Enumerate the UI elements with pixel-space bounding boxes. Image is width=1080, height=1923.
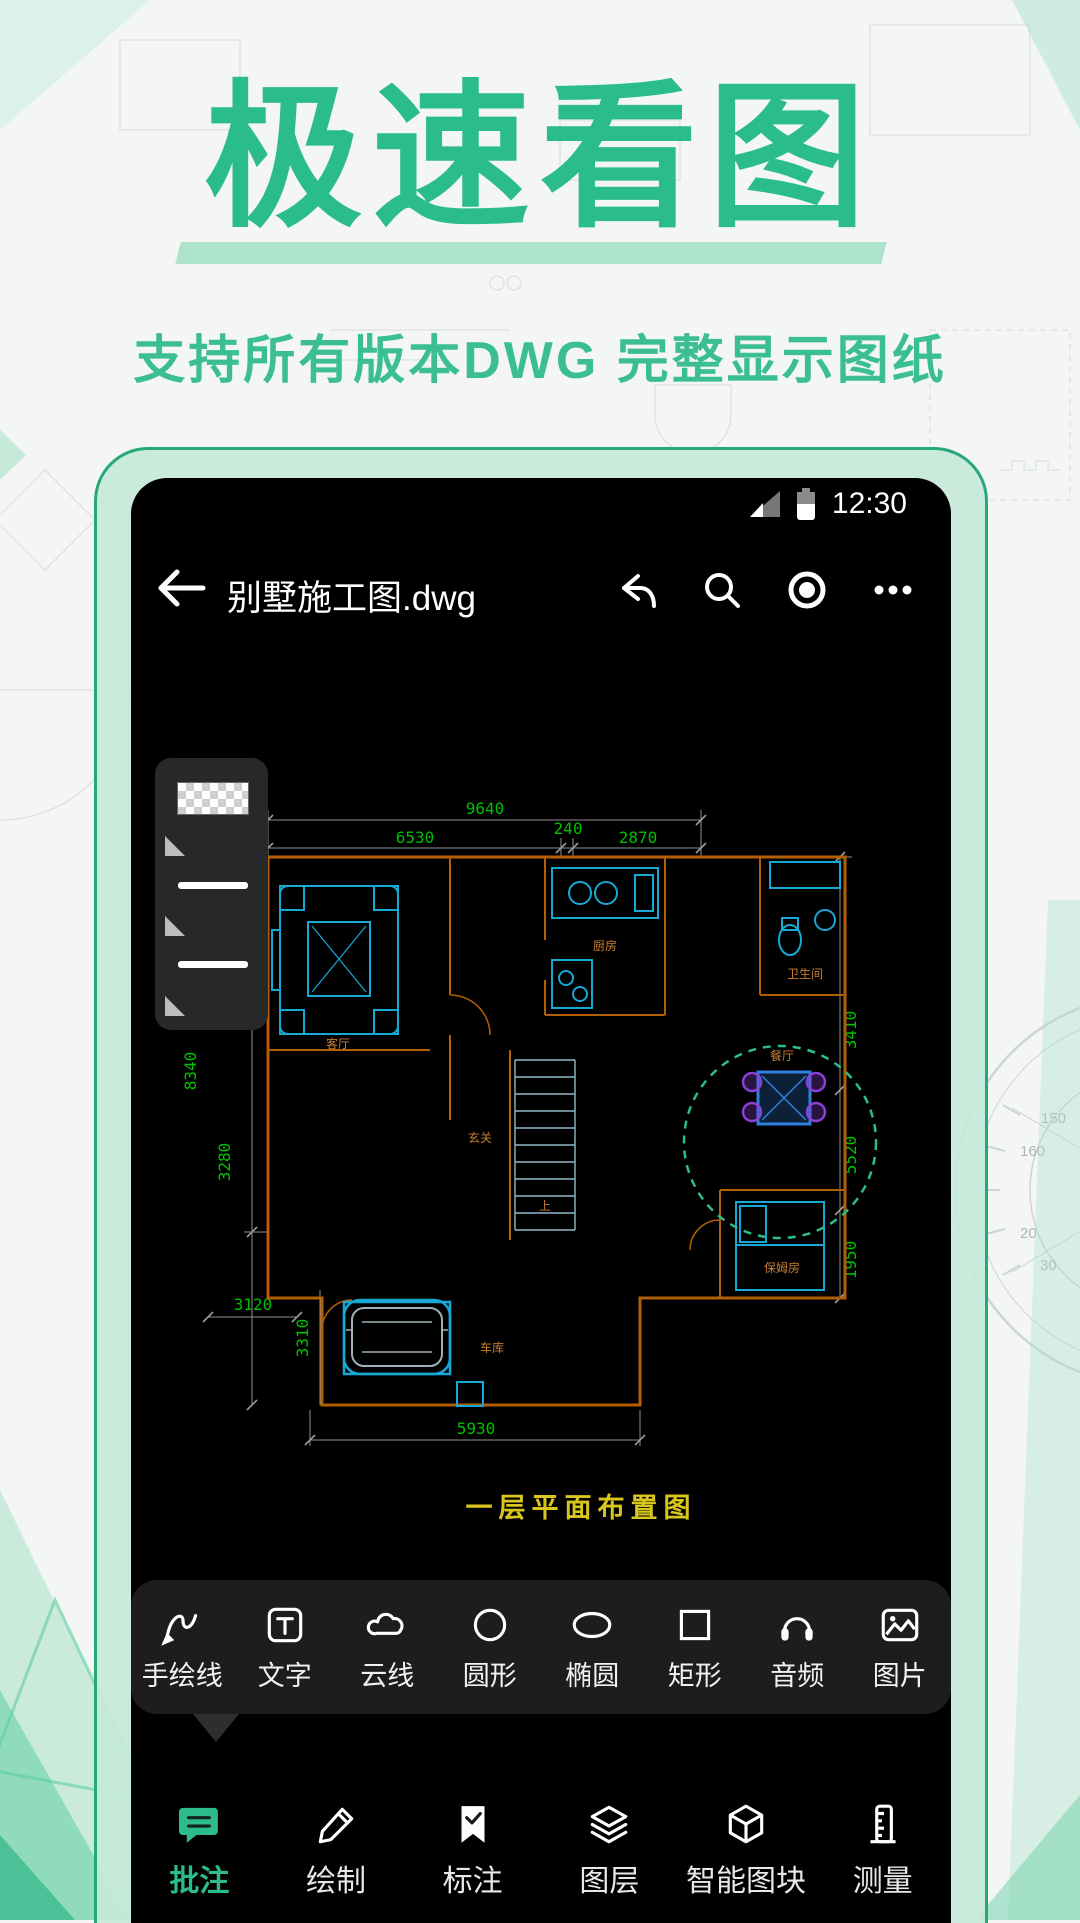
tab-label: 图层 [579, 1856, 639, 1900]
room-label: 上 [539, 1199, 551, 1213]
tool-image[interactable]: 图片 [849, 1602, 952, 1693]
dim-label: 3120 [234, 1295, 273, 1314]
draw-icon [313, 1802, 359, 1848]
tab-label: 批注 [169, 1856, 229, 1900]
dim-label: 6530 [396, 828, 435, 847]
status-time: 12:30 [832, 487, 907, 521]
tool-ellipse[interactable]: 椭圆 [541, 1602, 644, 1693]
tool-freehand-line[interactable]: 手绘线 [131, 1602, 234, 1693]
page-subtitle: 支持所有版本DWG 完整显示图纸 [0, 318, 1080, 393]
text-icon [262, 1602, 308, 1648]
transparent-color-swatch[interactable] [177, 782, 249, 815]
tab-measure[interactable]: 测量 [814, 1802, 951, 1900]
room-label: 保姆房 [764, 1260, 800, 1275]
dim-label: 5930 [457, 1419, 496, 1438]
app-screen: 12:30 别墅施工图.dwg [131, 478, 951, 1923]
tab-dimension[interactable]: 标注 [404, 1802, 541, 1900]
undo-icon[interactable] [616, 568, 660, 612]
line-style-option[interactable] [165, 996, 185, 1016]
tab-draw[interactable]: 绘制 [268, 1802, 405, 1900]
tool-label: 手绘线 [142, 1654, 223, 1693]
tab-label: 标注 [443, 1856, 503, 1900]
selected-dining-table[interactable] [743, 1072, 825, 1124]
battery-icon [794, 486, 818, 522]
dim-label: 3310 [293, 1319, 312, 1358]
status-bar: 12:30 [750, 486, 907, 522]
layers-icon [586, 1802, 632, 1848]
signal-icon [750, 491, 780, 517]
tab-layers[interactable]: 图层 [541, 1802, 678, 1900]
room-label: 客厅 [326, 1036, 350, 1051]
tab-label: 绘制 [306, 1856, 366, 1900]
search-icon[interactable] [700, 568, 744, 612]
line-style-option[interactable] [165, 916, 185, 936]
line-style-panel [155, 758, 268, 1030]
tool-label: 文字 [258, 1654, 312, 1693]
cad-canvas[interactable]: 9640 6530 240 2870 8340 3280 3120 3310 5… [180, 790, 880, 1490]
locate-target-icon[interactable] [785, 568, 829, 612]
dim-label: 240 [554, 819, 583, 838]
tool-label: 云线 [360, 1654, 414, 1693]
freehand-line-icon [159, 1602, 205, 1648]
rectangle-icon [672, 1602, 718, 1648]
line-width-sample[interactable] [178, 961, 248, 968]
smart-block-icon [723, 1802, 769, 1848]
page-title: 极速看图 [0, 76, 1080, 242]
floorplan-furniture [272, 862, 840, 1406]
dim-label: 3280 [215, 1143, 234, 1182]
tool-rectangle[interactable]: 矩形 [644, 1602, 747, 1693]
more-menu-icon[interactable] [871, 568, 915, 612]
measure-icon [860, 1802, 906, 1848]
drawing-caption: 一层平面布置图 [391, 1486, 771, 1525]
cloud-line-icon [364, 1602, 410, 1648]
image-icon [877, 1602, 923, 1648]
tool-label: 椭圆 [565, 1654, 619, 1693]
dim-label: 9640 [466, 799, 505, 818]
tool-circle[interactable]: 圆形 [439, 1602, 542, 1693]
tool-label: 矩形 [668, 1654, 722, 1693]
bottom-tab-bar: 批注 绘制 标注 [131, 1778, 951, 1923]
audio-icon [774, 1602, 820, 1648]
tool-audio[interactable]: 音频 [746, 1602, 849, 1693]
back-button[interactable] [153, 566, 209, 610]
phone-mockup: 12:30 别墅施工图.dwg [94, 447, 988, 1923]
tab-label: 测量 [853, 1856, 913, 1900]
room-label: 车库 [480, 1340, 504, 1355]
dim-label: 8340 [181, 1052, 200, 1091]
tab-smart-block[interactable]: 智能图块 [678, 1802, 815, 1900]
annotation-toolbar: 手绘线 文字 云线 [131, 1580, 951, 1714]
tool-label: 圆形 [463, 1654, 517, 1693]
toolbar-pointer-triangle [193, 1714, 239, 1742]
dim-label: 2870 [619, 828, 658, 847]
file-title: 别墅施工图.dwg [227, 570, 476, 621]
circle-icon [467, 1602, 513, 1648]
tab-annotate[interactable]: 批注 [131, 1802, 268, 1900]
dimension-icon [450, 1802, 496, 1848]
line-width-sample[interactable] [178, 882, 248, 889]
tab-label: 智能图块 [686, 1856, 806, 1900]
tool-label: 图片 [873, 1654, 927, 1693]
annotate-icon [176, 1802, 222, 1848]
tool-label: 音频 [770, 1654, 824, 1693]
room-label: 厨房 [593, 938, 617, 953]
tool-cloud-line[interactable]: 云线 [336, 1602, 439, 1693]
app-bar: 别墅施工图.dwg [131, 562, 951, 626]
floorplan-car [344, 1300, 450, 1374]
line-style-option[interactable] [165, 836, 185, 856]
protractor-label: 20 [1020, 1225, 1037, 1242]
tool-text[interactable]: 文字 [234, 1602, 337, 1693]
room-label: 餐厅 [770, 1048, 794, 1063]
room-label: 卫生间 [787, 967, 823, 981]
room-label: 玄关 [468, 1130, 492, 1145]
ellipse-icon [569, 1602, 615, 1648]
